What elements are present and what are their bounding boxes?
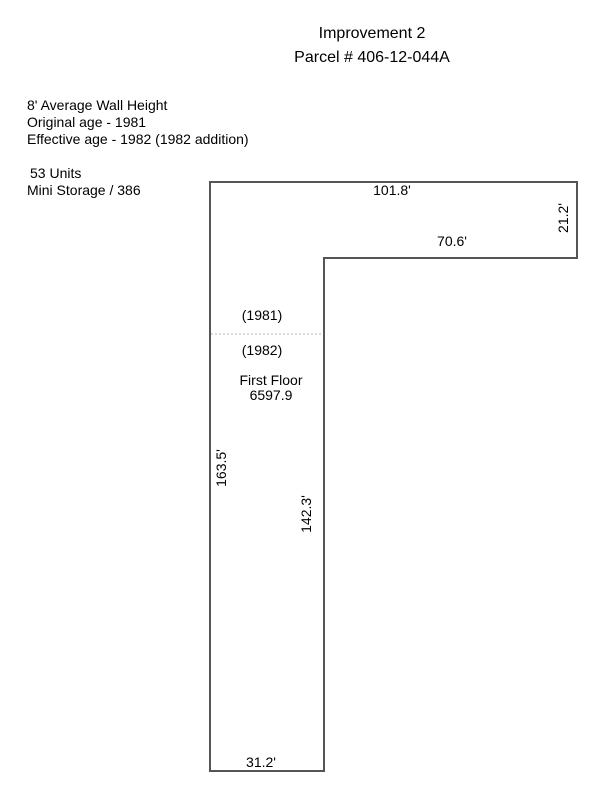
dimension-inner-edge: 142.3' xyxy=(299,495,313,533)
floor-info: First Floor 6597.9 xyxy=(240,373,303,403)
sketch-page: Improvement 2 Parcel # 406-12-044A 8' Av… xyxy=(0,0,600,800)
dimension-left-edge: 163.5' xyxy=(214,449,228,487)
dimension-right-edge: 21.2' xyxy=(556,203,570,233)
dimension-notch-edge: 70.6' xyxy=(437,234,467,248)
floor-name-text: First Floor xyxy=(240,373,303,388)
floor-area-value: 6597.9 xyxy=(240,388,303,403)
dimension-top-edge: 101.8' xyxy=(373,183,411,197)
section-year-1982: (1982) xyxy=(242,343,282,357)
dimension-bottom-edge: 31.2' xyxy=(246,755,276,769)
section-year-1981: (1981) xyxy=(242,308,282,322)
building-outline-polygon xyxy=(210,182,577,771)
